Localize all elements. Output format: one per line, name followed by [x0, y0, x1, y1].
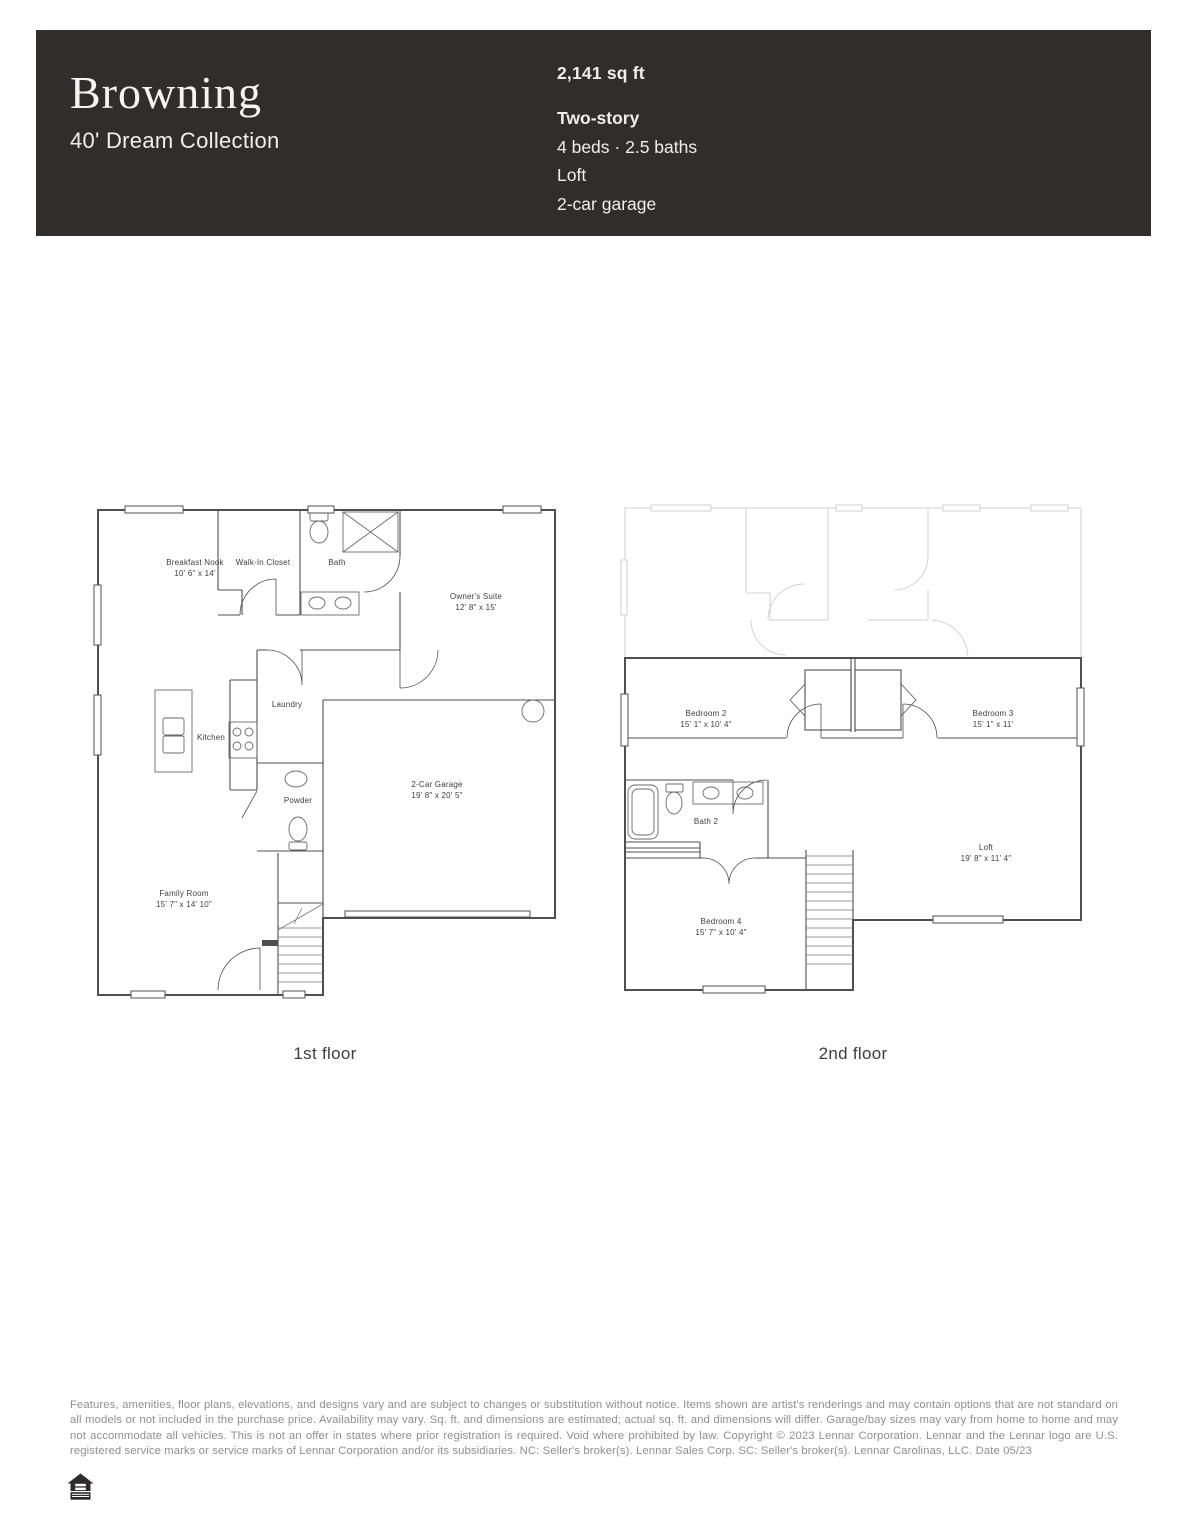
stove	[229, 722, 257, 758]
header-banner: Browning 40' Dream Collection 2,141 sq f…	[36, 30, 1151, 236]
room-label-bath: Bath	[328, 558, 345, 567]
sink	[335, 597, 351, 609]
room-label-bedroom3: Bedroom 3	[973, 709, 1014, 718]
floor2-stairs	[806, 856, 853, 964]
stat-stories: Two-story	[557, 104, 697, 133]
room-label-breakfast-nook: Breakfast Nook	[166, 558, 224, 567]
room-label-kitchen: Kitchen	[197, 733, 225, 742]
kitchen-island	[155, 690, 192, 772]
room-label-garage: 2-Car Garage	[411, 780, 463, 789]
room-dims-bedroom2: 15' 1" x 10' 4"	[680, 720, 731, 729]
room-label-walk-in-closet: Walk-In Closet	[236, 558, 291, 567]
stat-sqft: 2,141 sq ft	[557, 63, 697, 84]
powder-toilet	[289, 817, 307, 841]
legal-disclaimer: Features, amenities, floor plans, elevat…	[70, 1398, 1118, 1460]
room-label-loft: Loft	[979, 843, 994, 852]
room-dims-garage: 19' 8" x 20' 5"	[411, 791, 462, 800]
floor2-labels: Bedroom 2 15' 1" x 10' 4" Bedroom 3 15' …	[680, 709, 1013, 937]
room-dims-bedroom3: 15' 1" x 11'	[973, 720, 1014, 729]
sink	[309, 597, 325, 609]
toilet-bowl	[666, 792, 682, 814]
toilet-bowl	[310, 521, 328, 543]
equal-housing-opportunity-icon	[67, 1473, 94, 1501]
room-label-bath2: Bath 2	[694, 817, 719, 826]
first-floor-plan: Breakfast Nook 10' 6" x 14' Walk-In Clos…	[90, 498, 560, 1005]
equal-housing-house-icon	[67, 1473, 94, 1501]
floor1-stairs	[278, 904, 323, 982]
first-floor-drawing: Breakfast Nook 10' 6" x 14' Walk-In Clos…	[90, 498, 560, 1005]
room-label-family-room: Family Room	[159, 889, 208, 898]
floor-below-ghost-outline	[621, 505, 1081, 658]
floor1-windows	[94, 506, 541, 998]
room-label-laundry: Laundry	[272, 700, 302, 709]
room-dims-loft: 19' 8" x 11' 4"	[961, 854, 1012, 863]
powder-sink	[285, 771, 307, 787]
floor2-doors	[703, 684, 937, 884]
floor-plan-sheet: Browning 40' Dream Collection 2,141 sq f…	[0, 0, 1187, 1536]
entry-wall-stub	[262, 940, 278, 946]
room-dims-breakfast-nook: 10' 6" x 14'	[174, 569, 215, 578]
island-sink	[163, 736, 184, 753]
room-label-owners-suite: Owner's Suite	[450, 592, 502, 601]
bath2-vanity	[693, 782, 763, 804]
title-block: Browning 40' Dream Collection	[70, 68, 280, 156]
room-label-bedroom4: Bedroom 4	[701, 917, 742, 926]
bath-vanity	[301, 592, 359, 615]
sink	[737, 787, 753, 799]
room-label-powder: Powder	[284, 796, 312, 805]
garage-door	[345, 911, 530, 917]
sink	[703, 787, 719, 799]
floor1-labels: Breakfast Nook 10' 6" x 14' Walk-In Clos…	[156, 558, 502, 909]
collection-subtitle: 40' Dream Collection	[70, 126, 280, 156]
water-heater	[522, 700, 544, 722]
floor1-outer-walls	[98, 510, 555, 995]
second-floor-plan: Bedroom 2 15' 1" x 10' 4" Bedroom 3 15' …	[618, 498, 1088, 1005]
stat-garage: 2-car garage	[557, 190, 697, 219]
room-dims-owners-suite: 12' 8" x 15'	[455, 603, 496, 612]
home-stats: 2,141 sq ft Two-story 4 beds · 2.5 baths…	[557, 63, 697, 218]
second-floor-caption: 2nd floor	[618, 1044, 1088, 1064]
stat-loft: Loft	[557, 161, 697, 190]
island-sink	[163, 718, 184, 735]
room-label-bedroom2: Bedroom 2	[686, 709, 727, 718]
stat-beds-baths: 4 beds · 2.5 baths	[557, 133, 697, 162]
second-floor-drawing: Bedroom 2 15' 1" x 10' 4" Bedroom 3 15' …	[618, 498, 1088, 1005]
room-dims-family-room: 15' 7" x 14' 10"	[156, 900, 212, 909]
first-floor-caption: 1st floor	[90, 1044, 560, 1064]
toilet-tank	[666, 784, 683, 792]
room-dims-bedroom4: 15' 7" x 10' 4"	[695, 928, 746, 937]
floor1-interior-walls	[218, 510, 555, 995]
floor1-doors	[218, 556, 438, 990]
plan-title: Browning	[70, 68, 280, 118]
